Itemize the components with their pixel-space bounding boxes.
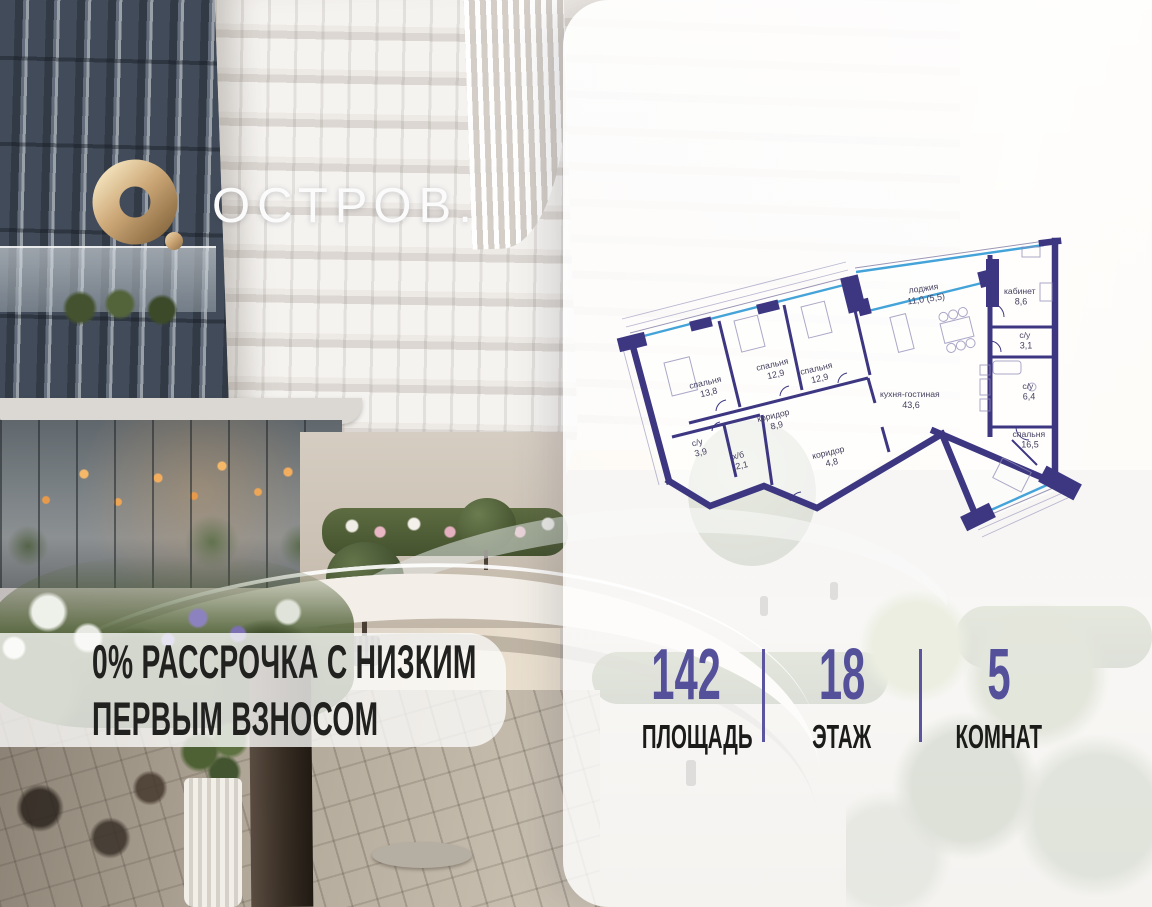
cafe-umbrella <box>372 842 472 868</box>
stat-area-label: ПЛОЩАДЬ <box>642 720 753 753</box>
stat-floor-label: ЭТАЖ <box>812 720 871 753</box>
room-label: с/у 3,1 <box>1019 330 1032 351</box>
stat-rooms-label: КОМНАТ <box>956 720 1042 753</box>
planter <box>184 778 242 907</box>
balcony-plants <box>50 288 200 328</box>
brand-logo: ОСТРОВ. <box>90 158 479 254</box>
logo-dot-icon <box>165 232 183 250</box>
stat-floor-value: 18 <box>819 642 865 708</box>
logo-ring-icon <box>90 158 188 254</box>
stat-area-value: 142 <box>651 642 721 708</box>
stat-rooms-value: 5 <box>987 642 1010 708</box>
room-label: с/у 6,4 <box>1022 381 1035 402</box>
floor-plan: спальня 13,8 спальня 12,9 спальня 12,9 к… <box>612 215 1152 555</box>
cafe-furniture <box>0 748 178 907</box>
promo-card: спальня 13,8 спальня 12,9 спальня 12,9 к… <box>0 0 1152 907</box>
brand-name: ОСТРОВ. <box>212 178 479 234</box>
promo-banner: 0% РАССРОЧКА С НИЗКИМ ПЕРВЫМ ВЗНОСОМ <box>0 633 506 747</box>
promo-banner-line2: ПЕРВЫМ ВЗНОСОМ <box>92 690 340 747</box>
stat-area: 142 ПЛОЩАДЬ <box>608 642 764 753</box>
stat-rooms: 5 КОМНАТ <box>921 642 1077 753</box>
promo-banner-line1: 0% РАССРОЧКА С НИЗКИМ <box>92 633 340 690</box>
stat-floor: 18 ЭТАЖ <box>764 642 920 753</box>
